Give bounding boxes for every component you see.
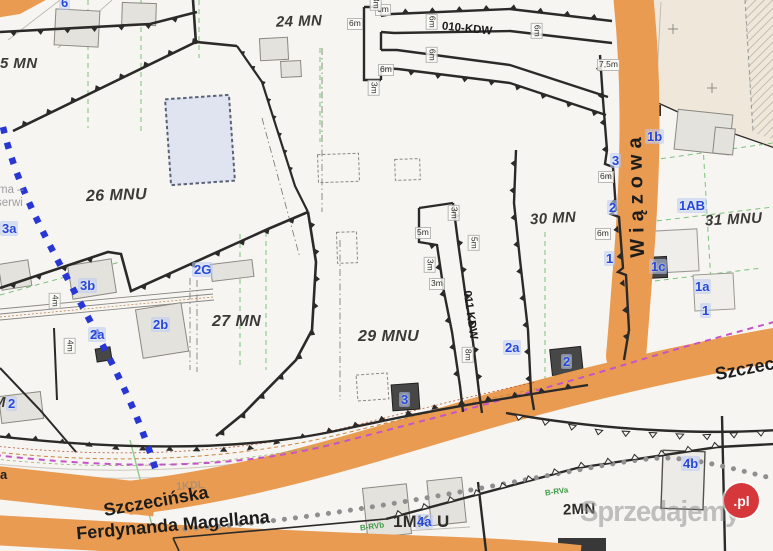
parcel-badge-2b: 2b [151, 317, 170, 332]
parcel-badge-3a: 3a [0, 221, 18, 236]
zone-label-30mn: 30 MN [530, 210, 577, 228]
dim-label: 3m [368, 80, 380, 96]
parcel-badge-2a: 2a [503, 340, 521, 355]
dim-label: 6m [531, 23, 543, 39]
dim-label: 3m [448, 205, 460, 221]
zone-label-27mn: 27 MN [212, 314, 261, 331]
parcel-badge-1ab: 1AB [677, 198, 707, 213]
large-building-26mnu [165, 95, 235, 185]
watermark-brand: Sprzedajemy [580, 497, 740, 527]
watermark-pl-logo: .pl [724, 483, 759, 518]
parcel-badge-1b: 1b [645, 129, 664, 144]
zone-label-1mku-right: U [437, 513, 450, 531]
parcel-badge-1: 1 [604, 251, 615, 266]
parcel-badge-2a: 2a [88, 327, 106, 342]
zoning-map-graphics [0, 0, 773, 551]
dim-label: 5m [468, 235, 480, 251]
dim-label: 4m [49, 293, 61, 309]
dim-label: 3m [429, 278, 445, 290]
dim-label: 3m [424, 257, 436, 273]
parcel-badge-2: 2 [561, 354, 572, 369]
dim-label: 6m [378, 64, 394, 76]
parcel-badge-3: 3 [610, 153, 621, 168]
watermark-fragment-1: ma – [0, 184, 24, 196]
parcel-badge-4a: 4a [415, 514, 433, 529]
watermark-fragment-2: serwi [0, 197, 23, 209]
dim-label: 6m [595, 228, 611, 240]
zone-label-29mnu: 29 MNU [358, 329, 419, 346]
parcel-badge-2: 2 [6, 396, 17, 411]
dim-label: 6m [426, 14, 438, 30]
zone-label-5mn: 5 MN [0, 56, 37, 72]
dim-label: 3m [370, 0, 382, 11]
zone-label-31mnu: 31 MNU [705, 211, 763, 230]
parcel-badge-1a: 1a [693, 279, 711, 294]
watermark-tld: .pl [733, 493, 749, 509]
parcel-badge-3: 3 [399, 392, 410, 407]
parcel-badge-3b: 3b [78, 278, 97, 293]
zone-label-26mnu: 26 MNU [86, 187, 148, 206]
map-canvas[interactable]: 5 MN 24 MN 26 MNU 27 MN 29 MNU 30 MN 31 … [0, 0, 773, 551]
dim-label: 6m [598, 171, 614, 183]
parcel-badge-2: 2 [607, 200, 618, 215]
parcel-badge-1c: 1c [649, 259, 667, 274]
parcel-badge-6: 6 [59, 0, 70, 10]
dim-label: 7,5m [597, 59, 620, 71]
dim-label: 6m [347, 18, 363, 30]
dim-label: 4m [64, 338, 76, 354]
dim-label: 6m [426, 47, 438, 63]
parcel-badge-1: 1 [700, 303, 711, 318]
parcel-badge-2g: 2G [192, 262, 213, 277]
parcel-badge-4b: 4b [681, 456, 700, 471]
street-label-partial-a: a [0, 468, 7, 482]
dim-label: 5m [415, 227, 431, 239]
zone-label-24mn: 24 MN [276, 13, 323, 30]
dim-label: 8m [462, 347, 474, 363]
